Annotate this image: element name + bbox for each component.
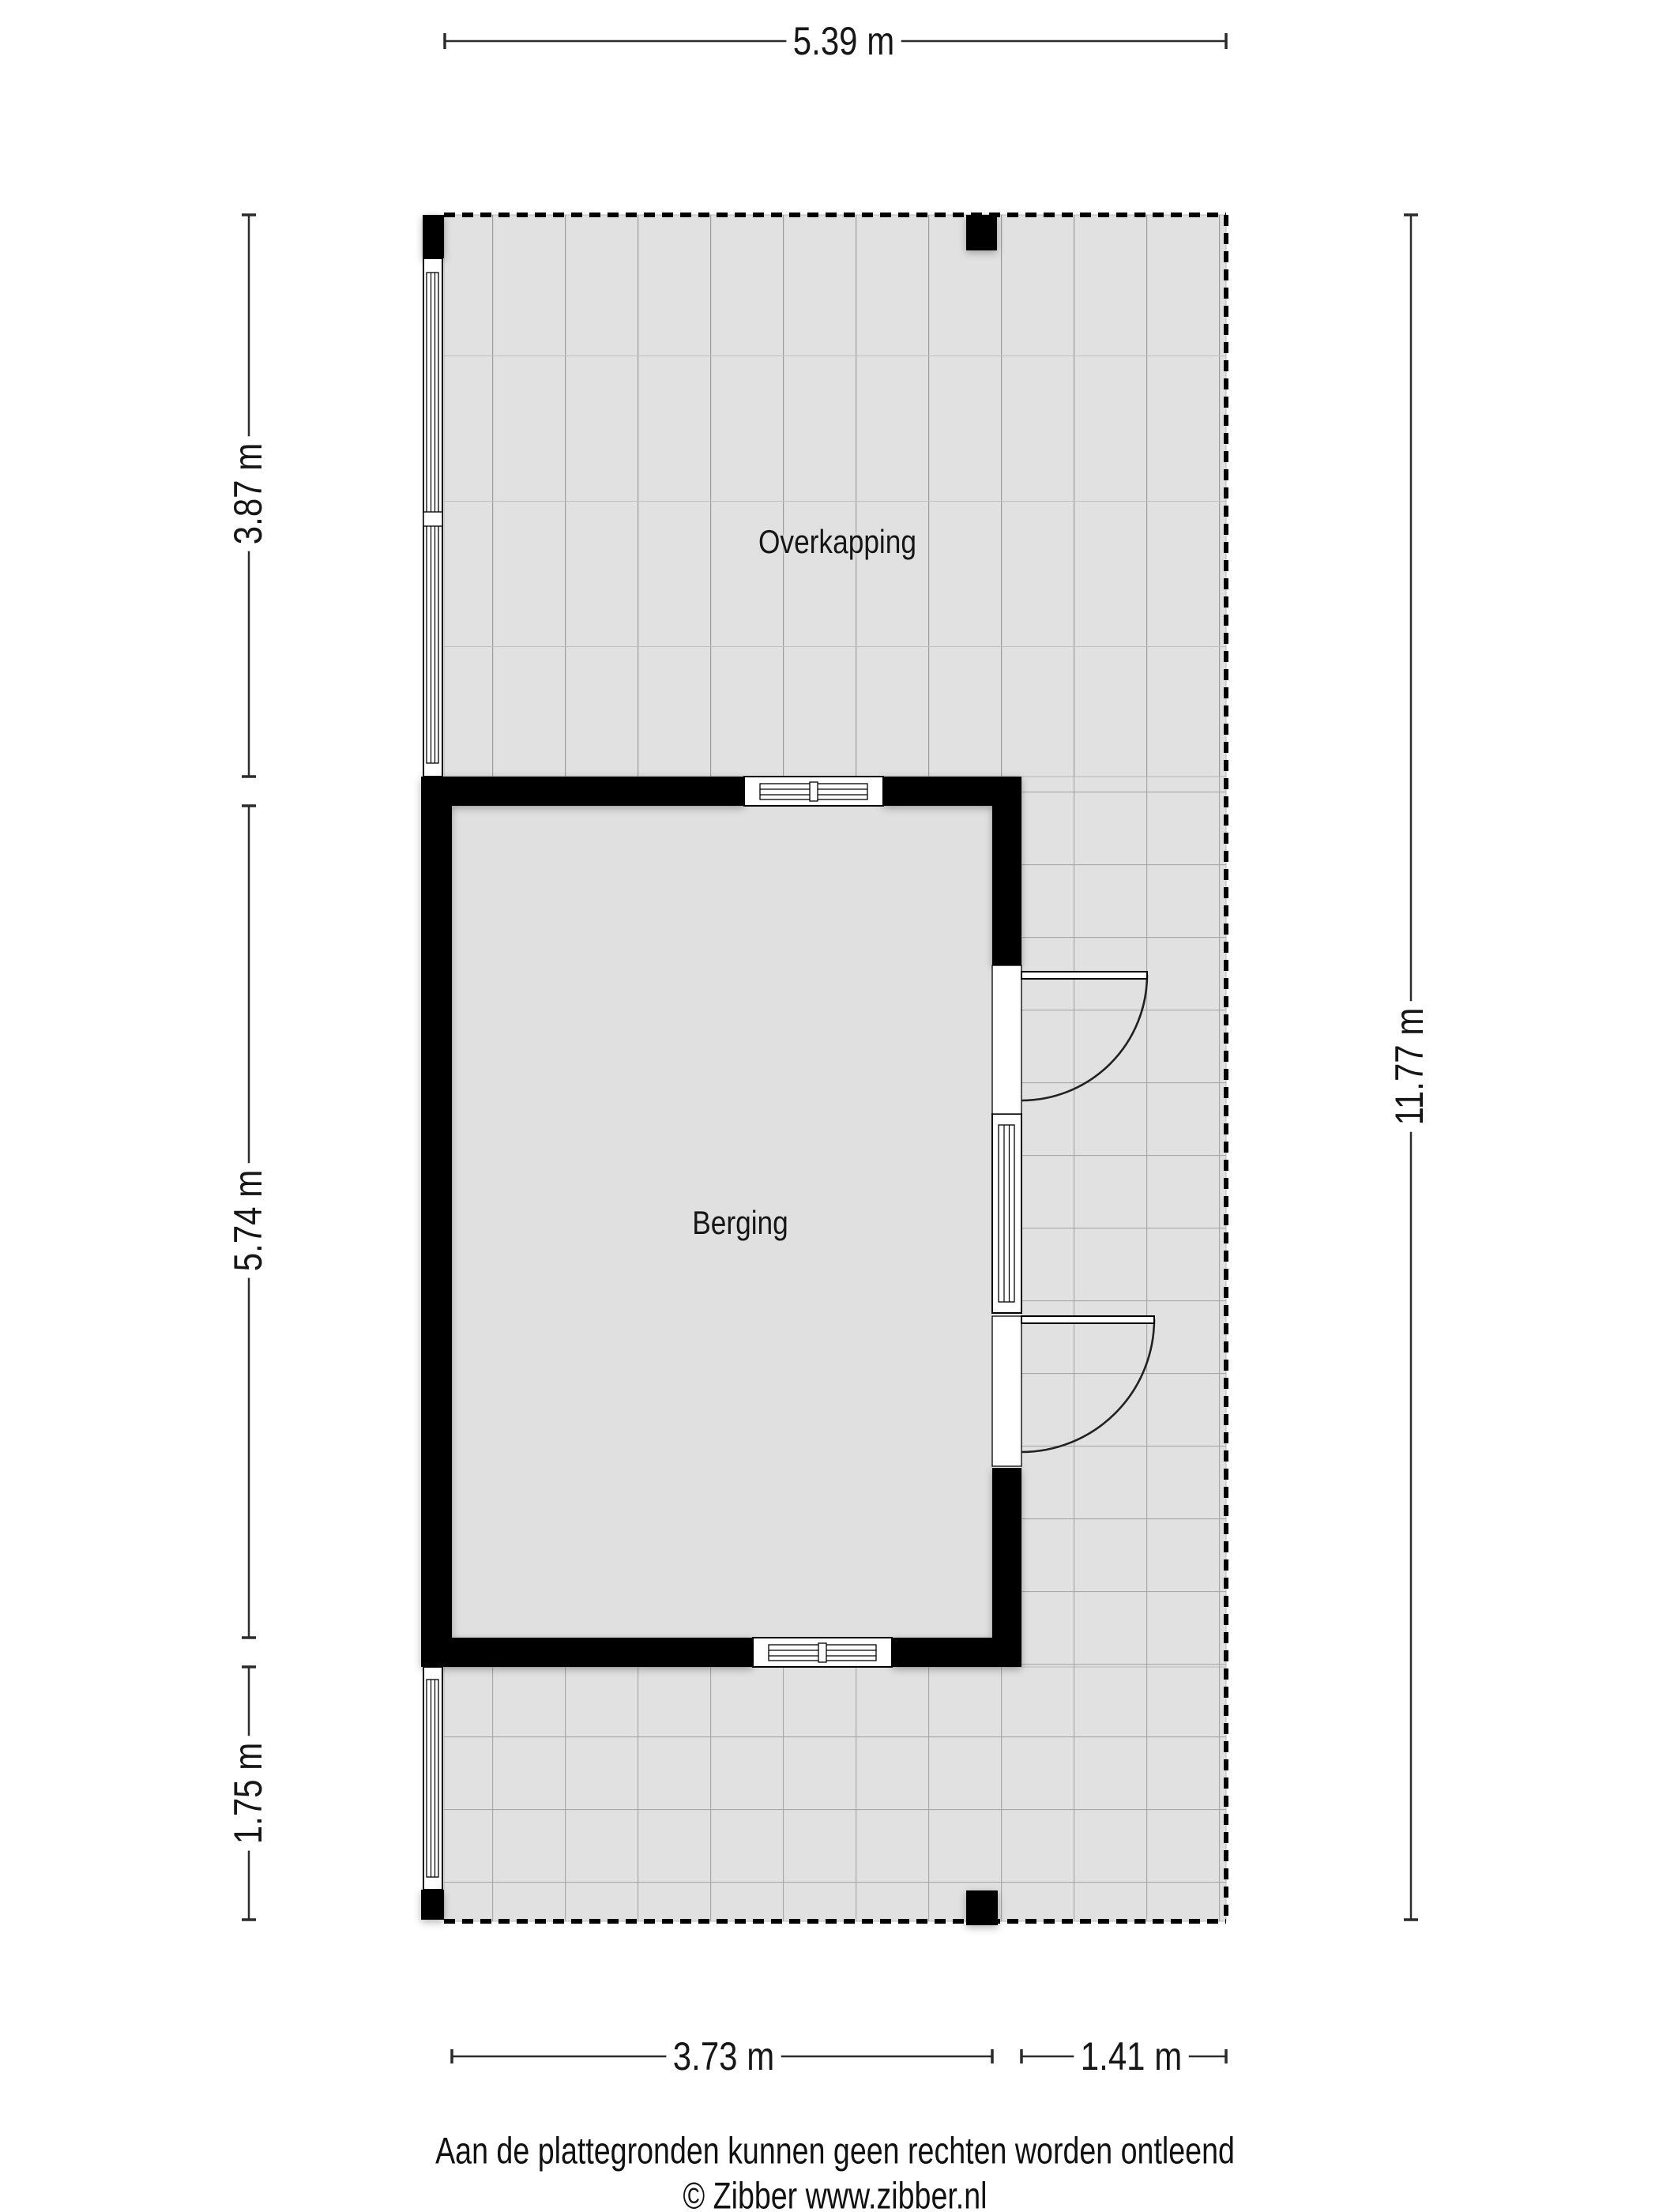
dimension-bottom-right: 1.41 m	[1074, 2034, 1188, 2078]
window-berging-top	[744, 777, 883, 806]
overkapping-deck-grid	[444, 215, 1226, 777]
dimension-top-width: 5.39 m	[786, 19, 901, 63]
room-label-overkapping: Overkapping	[758, 525, 916, 559]
berging-wall-top-left-part	[421, 777, 744, 806]
door-leaf	[1021, 972, 1147, 979]
dimension-left-bottom: 1.75 m	[226, 1736, 270, 1850]
berging-wall-bottom-left-part	[421, 1638, 753, 1667]
wall-stub-bottom-left	[421, 1890, 444, 1920]
berging-wall-right-lower	[992, 1468, 1021, 1667]
dimension-right-height: 11.77 m	[1387, 1001, 1431, 1131]
post-top	[966, 215, 997, 250]
floorplan-page: 5.39 m 3.87 m 5.74 m 1.75 m 11.77 m 3.73…	[0, 0, 1659, 2212]
dimension-bottom-left: 3.73 m	[666, 2034, 781, 2078]
door-leaf	[1021, 1316, 1154, 1323]
bottom-terrace-grid	[444, 1667, 1226, 1921]
window-left-lower	[423, 1667, 442, 1890]
footer-disclaimer: Aan de plattegronden kunnen geen rechten…	[435, 2132, 1235, 2169]
window-berging-right	[992, 1114, 1021, 1313]
room-label-berging: Berging	[692, 1206, 788, 1240]
window-berging-bottom	[753, 1638, 892, 1667]
footer-copyright: © Zibber www.zibber.nl	[683, 2177, 987, 2212]
right-terrace-grid	[1021, 777, 1226, 1667]
berging-wall-right-upper	[992, 777, 1021, 965]
berging-wall-left	[421, 777, 452, 1667]
wall-stub-top-left	[423, 215, 444, 258]
dimension-left-top: 3.87 m	[226, 436, 270, 551]
dimension-left-middle: 5.74 m	[226, 1163, 270, 1277]
window-left-upper	[423, 258, 442, 777]
post-bottom	[966, 1890, 998, 1925]
